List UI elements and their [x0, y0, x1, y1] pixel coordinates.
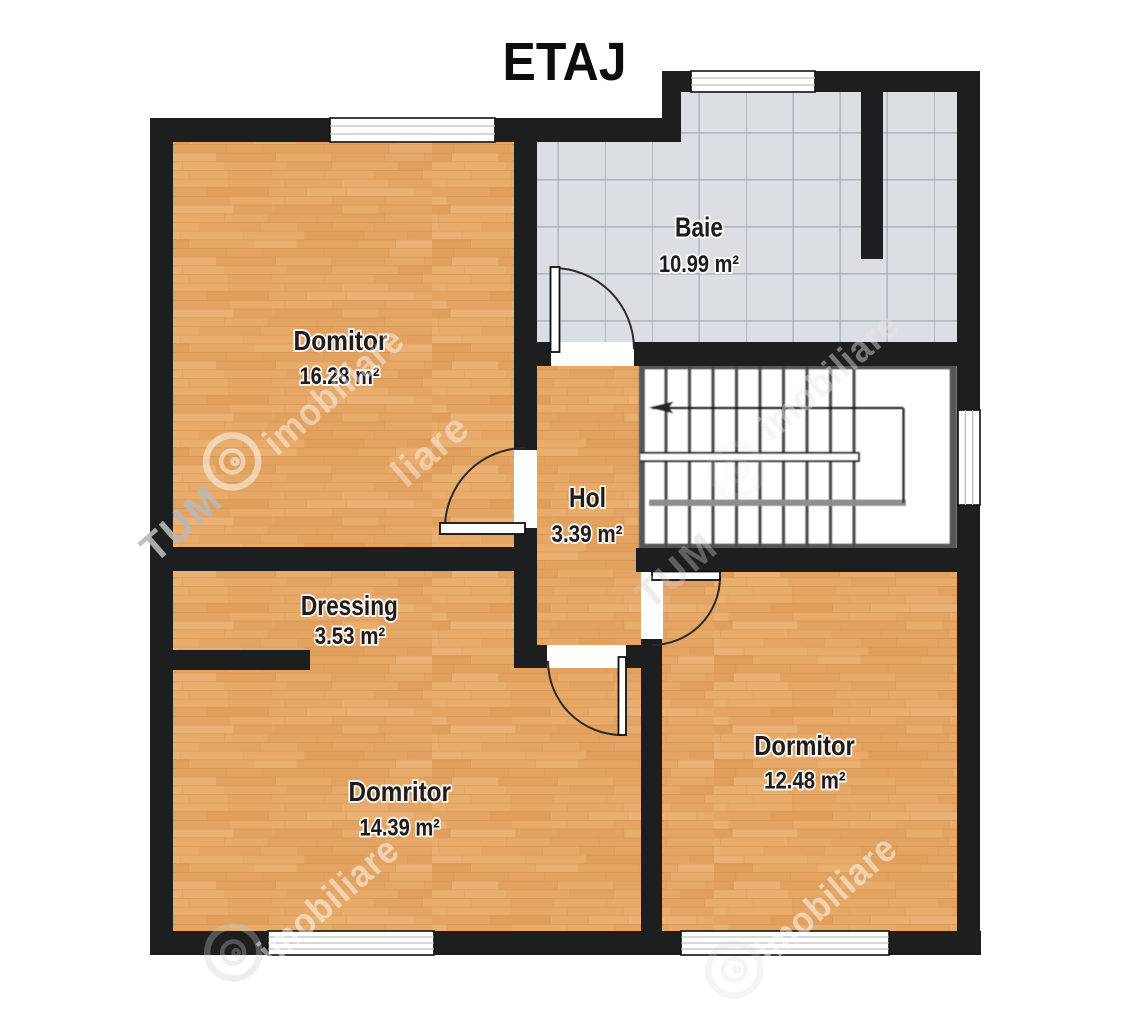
svg-text:3.39 m²: 3.39 m²	[552, 521, 623, 548]
svg-text:10.99 m²: 10.99 m²	[659, 251, 739, 278]
svg-text:Dressing: Dressing	[301, 590, 398, 621]
svg-text:Baie: Baie	[675, 212, 723, 243]
svg-text:ETAJ: ETAJ	[503, 32, 627, 92]
svg-text:12.48 m²: 12.48 m²	[764, 768, 846, 795]
svg-text:Hol: Hol	[569, 482, 606, 513]
svg-text:Domritor: Domritor	[348, 776, 451, 807]
svg-text:Dormitor: Dormitor	[754, 730, 855, 761]
svg-text:3.53 m²: 3.53 m²	[315, 623, 386, 650]
